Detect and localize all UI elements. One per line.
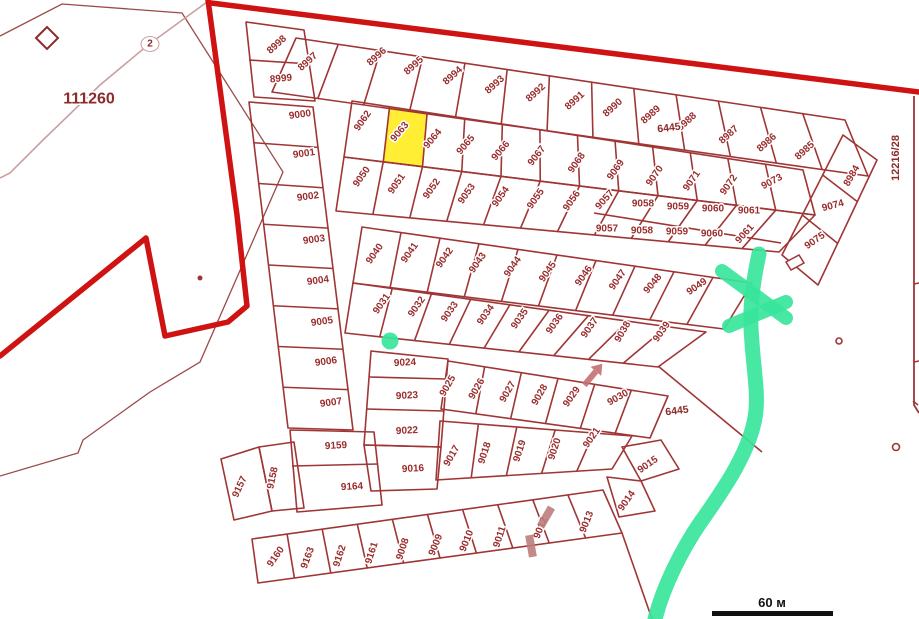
area-label-6445: 6445 <box>657 121 682 136</box>
parcel-label-9033: 9033 <box>439 299 461 324</box>
parcel-label-8987: 8987 <box>717 123 741 146</box>
parcel-label-8997: 8997 <box>296 50 320 73</box>
parcel-label-9158: 9158 <box>265 466 280 490</box>
building-outline <box>786 255 804 270</box>
parcel-label-9055: 9055 <box>525 186 547 211</box>
parcel-label-9157: 9157 <box>230 474 250 499</box>
parcel-label-9053: 9053 <box>456 181 478 206</box>
parcel-label-9022: 9022 <box>396 425 419 437</box>
parcel-label-9005: 9005 <box>310 315 334 329</box>
parcel-label-9000: 9000 <box>288 108 312 122</box>
area-label-2: 2 <box>147 39 153 50</box>
parcel-label-9072: 9072 <box>718 172 740 197</box>
parcel-label-9039: 9039 <box>651 319 673 344</box>
area-label-6445: 6445 <box>665 404 690 419</box>
parcel-label-9006: 9006 <box>314 355 338 369</box>
parcel-label-9018: 9018 <box>476 440 493 465</box>
parcel-label-9056: 9056 <box>561 188 583 213</box>
parcel-label-9025: 9025 <box>438 373 459 398</box>
parcel-label-9011: 9011 <box>491 525 508 549</box>
red-ring-point <box>836 338 842 344</box>
parcel-label-9015: 9015 <box>636 454 661 476</box>
parcel-label-9049: 9049 <box>685 276 710 298</box>
parcel-label-9010: 9010 <box>458 528 477 553</box>
parcel-label-9162: 9162 <box>331 543 348 568</box>
parcel-label-9046: 9046 <box>573 263 595 288</box>
parcel-label-9048: 9048 <box>642 272 665 296</box>
parcel-label-8999: 8999 <box>269 73 293 86</box>
parcel-label-9068: 9068 <box>566 150 588 175</box>
parcel-label-9030: 9030 <box>606 387 631 408</box>
parcel-label-8986: 8986 <box>755 131 779 154</box>
parcel-label-8998: 8998 <box>265 33 289 56</box>
parcel-label-9051: 9051 <box>386 171 408 196</box>
area-label-12216-28: 12216/28 <box>890 135 902 181</box>
parcel-label-9037: 9037 <box>579 315 601 340</box>
parcel-label-9013: 9013 <box>578 509 597 534</box>
red-point <box>198 276 203 281</box>
scale-bar-label: 60 м <box>758 595 786 610</box>
parcel-label-9062: 9062 <box>352 108 374 133</box>
parcel-label-9016: 9016 <box>402 463 425 475</box>
parcel-label-9040: 9040 <box>364 241 386 266</box>
parcel-label-9002: 9002 <box>296 190 320 204</box>
parcel-label-9065: 9065 <box>455 133 478 157</box>
parcel-label-9045: 9045 <box>537 259 559 284</box>
parcel-label-9054: 9054 <box>490 184 512 209</box>
area-label-111260: 111260 <box>63 91 115 108</box>
parcel-label-9017: 9017 <box>442 443 463 468</box>
parcel-label-9003: 9003 <box>302 233 326 247</box>
parcel-label-9060: 9060 <box>702 204 725 215</box>
parcel-label-9061: 9061 <box>733 222 756 246</box>
parcel-label-9061: 9061 <box>738 206 761 217</box>
parcel-label-9067: 9067 <box>526 144 549 169</box>
point-features <box>198 255 900 451</box>
parcel-label-9043: 9043 <box>467 250 489 275</box>
parcel-label-9161: 9161 <box>363 540 380 565</box>
parcel-label-9007: 9007 <box>319 396 343 410</box>
parcel-label-8990: 8990 <box>601 96 625 119</box>
parcel-label-9058: 9058 <box>632 199 655 210</box>
parcel-label-8993: 8993 <box>483 73 507 96</box>
red-ring-point <box>893 444 900 451</box>
green-marker-dot <box>382 333 399 350</box>
parcel-label-9160: 9160 <box>265 544 287 569</box>
parcel-label-9071: 9071 <box>681 168 703 193</box>
parcel-label-9163: 9163 <box>299 545 317 570</box>
parcel-label-9052: 9052 <box>421 176 443 201</box>
parcel-label-9028: 9028 <box>530 382 551 407</box>
parcel-label-9038: 9038 <box>613 319 634 344</box>
parcel-label-9023: 9023 <box>396 390 419 402</box>
parcel-label-9024: 9024 <box>394 357 417 369</box>
parcel-label-9074: 9074 <box>821 198 846 214</box>
parcel-label-8992: 8992 <box>524 81 548 104</box>
parcel-label-9073: 9073 <box>760 172 785 192</box>
parcel-label-9026: 9026 <box>467 376 488 401</box>
parcel-label-9057: 9057 <box>596 224 619 235</box>
scale-bar: 60 м <box>712 595 833 616</box>
parcel-label-9020: 9020 <box>546 436 563 461</box>
parcel-label-9164: 9164 <box>341 481 364 493</box>
parcel-label-9059: 9059 <box>666 227 689 238</box>
parcel-label-9004: 9004 <box>306 274 330 288</box>
parcel-label-9050: 9050 <box>351 164 373 189</box>
parcel-label-9034: 9034 <box>475 302 497 327</box>
parcel-label-9070: 9070 <box>644 163 666 188</box>
parcel-label-9035: 9035 <box>509 306 531 331</box>
parcel-label-9047: 9047 <box>607 267 629 292</box>
parcel-label-9060: 9060 <box>701 229 724 240</box>
green-route-annotation <box>655 254 759 619</box>
parcel-label-9001: 9001 <box>292 147 316 161</box>
map-layers: 8998899989978996899589948993899289918990… <box>0 0 919 619</box>
parcel-label-9159: 9159 <box>325 440 348 452</box>
parcel-label-9032: 9032 <box>406 294 428 319</box>
parcel-label-9069: 9069 <box>605 157 627 182</box>
parcel-label-9029: 9029 <box>561 384 583 409</box>
parcel-label-9059: 9059 <box>667 202 690 213</box>
parcel-label-9036: 9036 <box>544 311 566 336</box>
parcel-label-8984: 8984 <box>842 163 863 188</box>
parcel-label-9041: 9041 <box>399 240 421 265</box>
cadastral-map-view[interactable]: 8998899989978996899589948993899289918990… <box>0 0 919 619</box>
small-landmark-square <box>36 27 58 49</box>
scale-bar-line <box>712 611 833 616</box>
parcel-label-9044: 9044 <box>502 254 524 279</box>
parcel-label-9014: 9014 <box>616 488 638 513</box>
parcel-label-8991: 8991 <box>563 89 587 112</box>
parcel-label-9058: 9058 <box>631 226 654 237</box>
parcel-label-9009: 9009 <box>427 532 446 557</box>
cadastral-map[interactable]: 8998899989978996899589948993899289918990… <box>0 0 919 619</box>
